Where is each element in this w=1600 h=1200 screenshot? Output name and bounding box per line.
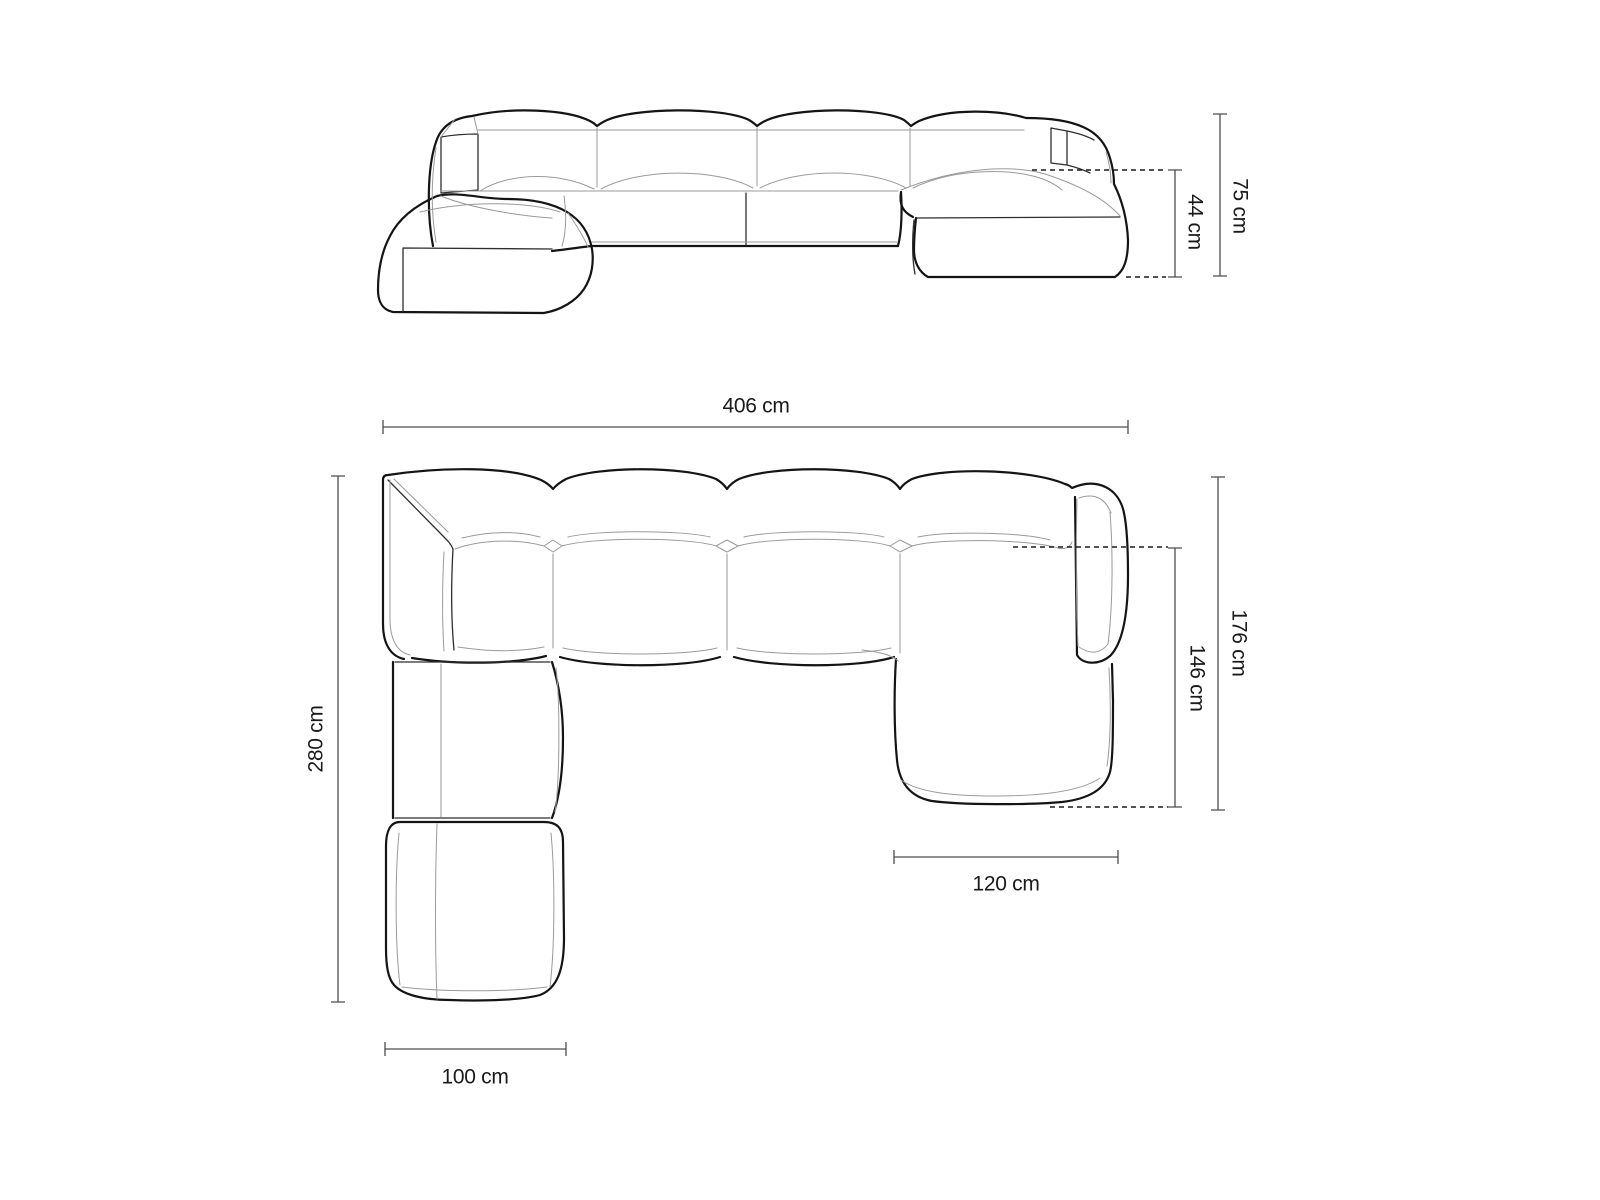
dimension-left-depth: 280 cm	[305, 476, 345, 1002]
dimension-line	[1211, 477, 1225, 810]
dimension-total-width: 406 cm	[383, 395, 1128, 434]
dimension-right-depth: 176 cm	[1211, 477, 1250, 810]
left-ottoman-silhouette	[378, 194, 593, 313]
plan-seat-bottom-arcs	[412, 656, 894, 665]
dimension-label-chaise-width: 120 cm	[972, 873, 1039, 896]
sofa-front-silhouette	[429, 110, 1128, 277]
seat-front-edge	[552, 246, 898, 251]
left-ottoman-front-face	[403, 248, 552, 311]
dimension-ottoman-width: 100 cm	[385, 1042, 566, 1089]
chaise-left-junction	[898, 192, 913, 246]
dimension-label-total-width: 406 cm	[722, 395, 789, 418]
plan-middle-module	[393, 662, 563, 818]
diagram-canvas: 406 cm 280 cm 176 cm 146 cm 120 cm 100 c…	[0, 0, 1600, 1200]
dimension-label-chaise-depth: 146 cm	[1185, 644, 1208, 711]
left-arm-panel	[441, 134, 478, 193]
dimension-line	[1213, 114, 1227, 276]
right-arm-panel	[1051, 128, 1094, 173]
dimension-label-seat-height: 44 cm	[1183, 194, 1206, 250]
plan-ottoman-seams	[396, 824, 554, 999]
plan-outer-boundary	[383, 469, 1128, 662]
dimension-label-left-depth: 280 cm	[305, 705, 328, 772]
plan-ottoman-outline	[386, 822, 564, 1000]
top-plan-view	[383, 469, 1168, 1000]
dimension-line	[894, 850, 1118, 864]
dimension-line	[1168, 170, 1182, 277]
seat-seams	[562, 196, 897, 246]
plan-middle-module-edges	[395, 662, 550, 818]
front-elevation-view	[378, 110, 1166, 313]
dimension-chaise-depth: 146 cm	[1168, 548, 1208, 807]
back-cushion-bottom-arcs	[480, 172, 1062, 191]
plan-backrest-inner-scallops	[455, 532, 1072, 552]
dimension-seat-height: 44 cm	[1168, 170, 1206, 277]
dimension-line	[385, 1042, 566, 1056]
dimension-chaise-width: 120 cm	[894, 850, 1118, 896]
back-divisions	[597, 128, 910, 187]
dimension-line	[331, 476, 345, 1002]
dimension-annotations: 406 cm 280 cm 176 cm 146 cm 120 cm 100 c…	[305, 114, 1252, 1089]
chaise-front-face	[913, 217, 1120, 274]
sofa-dimension-diagram: 406 cm 280 cm 176 cm 146 cm 120 cm 100 c…	[0, 0, 1600, 1200]
dimension-label-ottoman-width: 100 cm	[441, 1066, 508, 1089]
plan-middle-module-seams	[441, 664, 559, 817]
dimension-line	[1168, 548, 1182, 807]
plan-corner-seams	[390, 479, 448, 655]
plan-seat-divisions	[553, 554, 900, 653]
plan-right-arm-seams	[1076, 496, 1112, 652]
plan-corner-diagonal	[388, 480, 453, 549]
dimension-label-right-depth: 176 cm	[1227, 609, 1250, 676]
left-ottoman-seams	[420, 196, 588, 247]
dimension-label-total-height: 75 cm	[1228, 178, 1251, 234]
dimension-total-height: 75 cm	[1213, 114, 1251, 276]
plan-chaise-outline	[895, 659, 1113, 804]
dimension-line	[383, 420, 1128, 434]
plan-seat-upper-arcs	[458, 647, 891, 654]
chaise-top-face-seam	[901, 169, 1120, 216]
plan-arm-inner-edge	[452, 549, 454, 650]
